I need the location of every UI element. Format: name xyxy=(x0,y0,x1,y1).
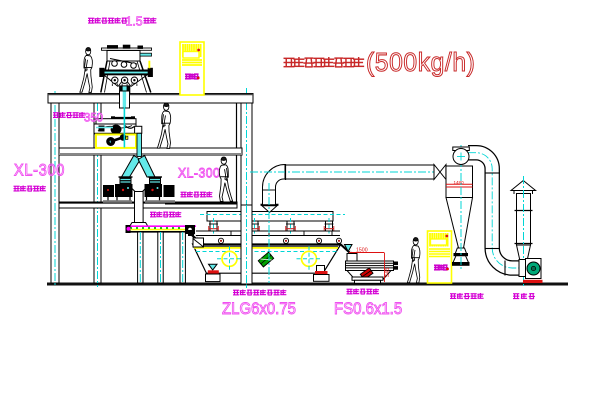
svg-text:1480: 1480 xyxy=(454,180,465,185)
svg-text:350: 350 xyxy=(84,111,103,124)
svg-text:(500kg/h): (500kg/h) xyxy=(366,48,475,77)
svg-text:ZLG6x0.75: ZLG6x0.75 xyxy=(222,300,296,318)
svg-text:1500: 1500 xyxy=(356,247,368,253)
svg-text:1.5: 1.5 xyxy=(126,14,143,28)
svg-text:XL-300: XL-300 xyxy=(178,165,220,181)
svg-text:XL-300: XL-300 xyxy=(14,162,65,180)
svg-text:545: 545 xyxy=(385,268,391,277)
svg-text:FS0.6x1.5: FS0.6x1.5 xyxy=(334,300,402,318)
